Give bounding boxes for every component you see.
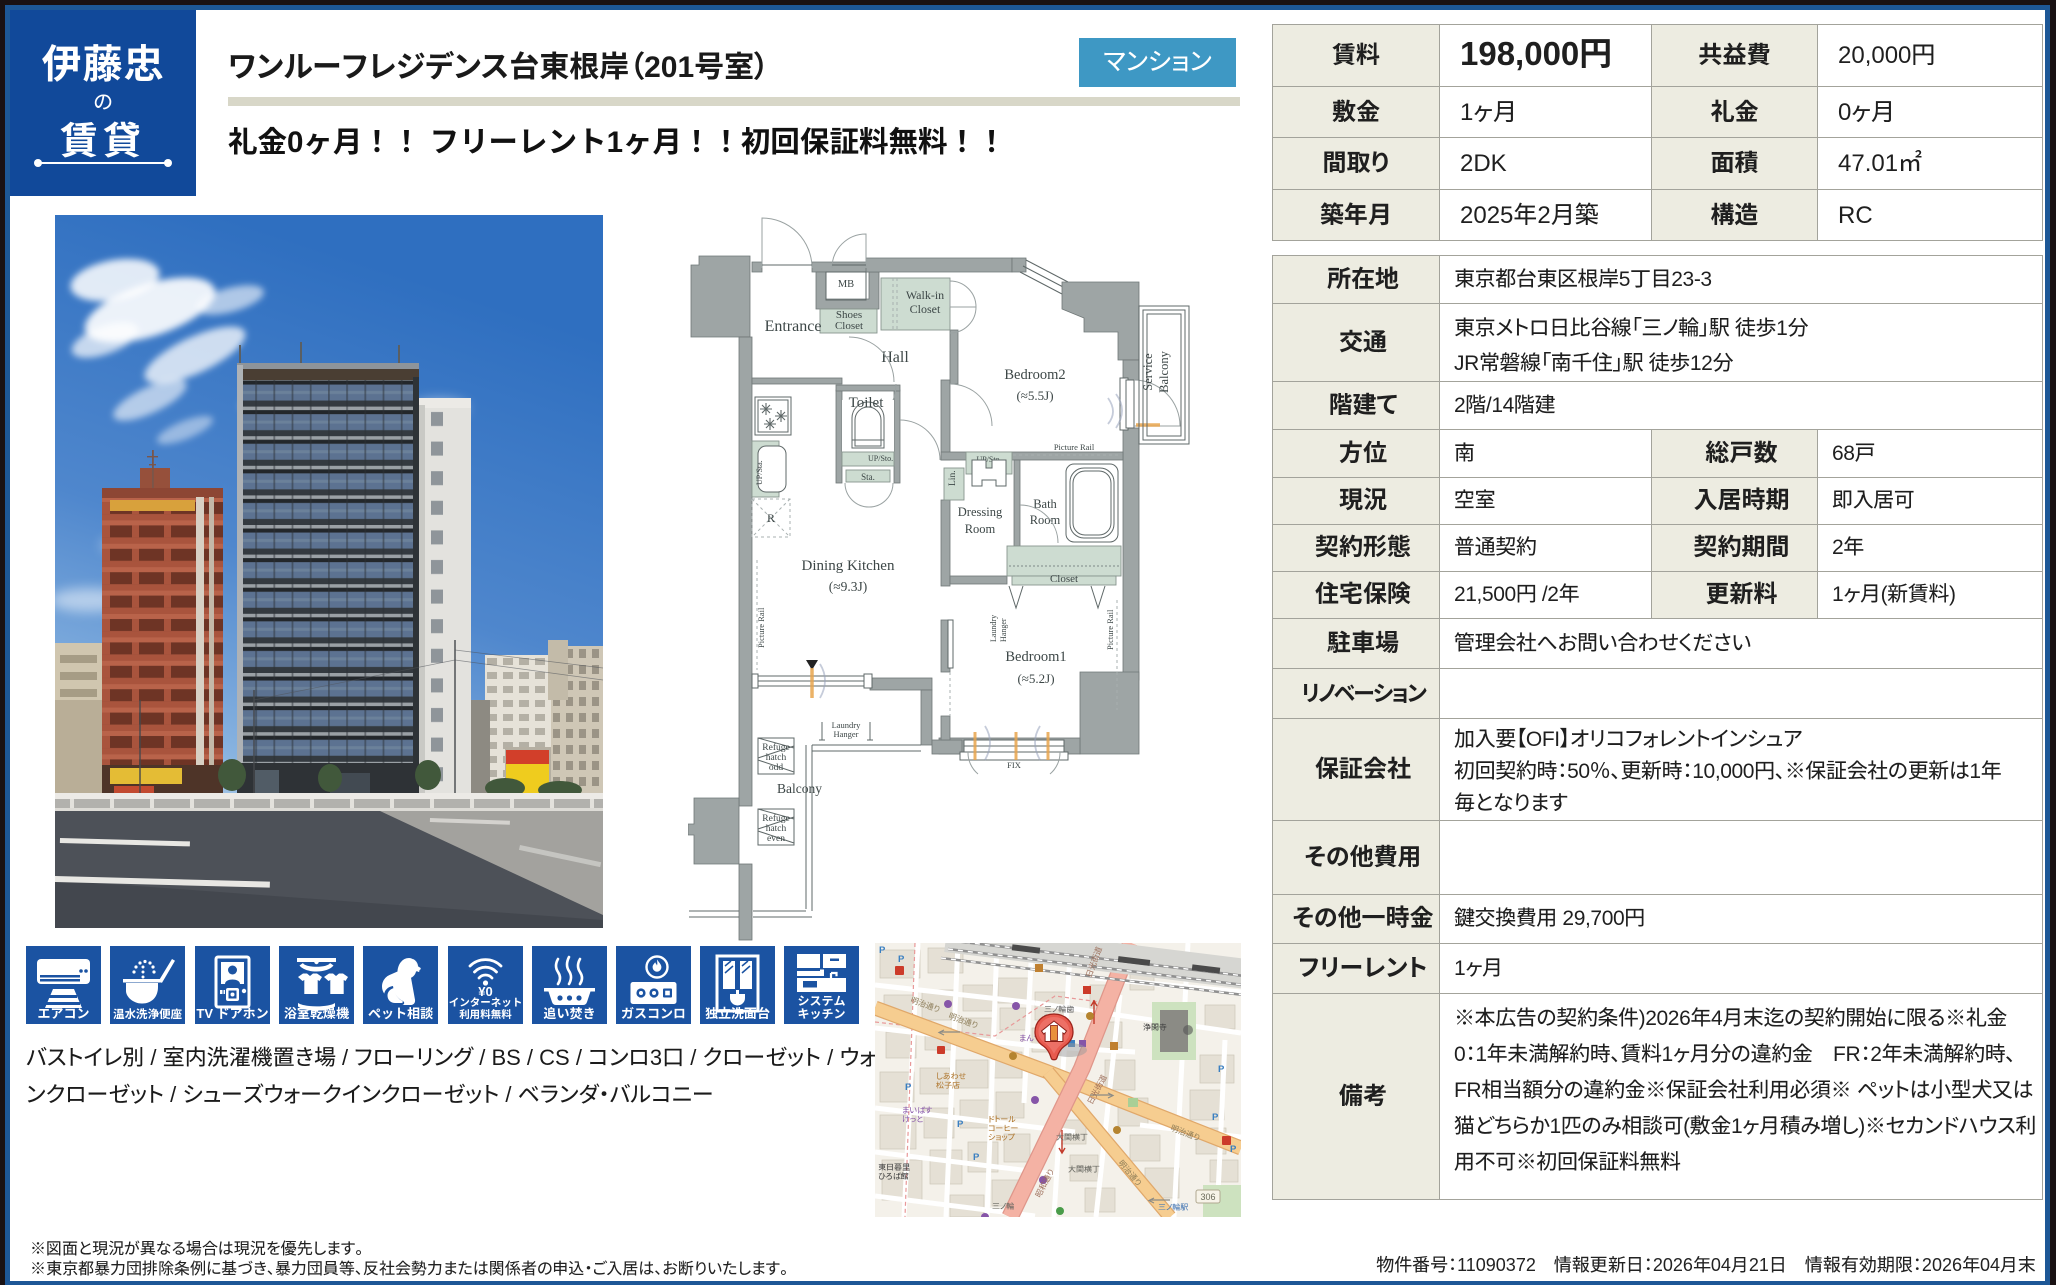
svg-text:Toilet: Toilet — [849, 395, 885, 411]
svg-text:(≈5.2J): (≈5.2J) — [1017, 671, 1054, 686]
svg-text:(≈9.3J): (≈9.3J) — [829, 579, 868, 594]
svg-text:しあわせ: しあわせ — [936, 1072, 967, 1081]
svg-text:Picture Rail: Picture Rail — [1054, 442, 1095, 452]
svg-text:P: P — [1218, 1064, 1225, 1075]
svg-text:Dining Kitchen: Dining Kitchen — [802, 558, 895, 574]
svg-text:Picture Rail: Picture Rail — [1105, 609, 1115, 650]
svg-text:浄閑寺: 浄閑寺 — [1143, 1023, 1167, 1032]
svg-text:P: P — [1230, 1144, 1237, 1155]
svg-text:Closet: Closet — [1050, 573, 1078, 585]
svg-text:ドトール: ドトール — [988, 1115, 1016, 1124]
svg-text:松子店: 松子店 — [935, 1081, 960, 1090]
svg-text:UP/Sto.: UP/Sto. — [868, 454, 893, 463]
svg-text:三ノ輪駅: 三ノ輪駅 — [1158, 1203, 1189, 1212]
svg-text:Balcony: Balcony — [777, 781, 822, 796]
svg-text:MB: MB — [838, 279, 854, 290]
svg-text:Hanger: Hanger — [833, 729, 858, 739]
svg-text:Refuge: Refuge — [762, 813, 789, 824]
svg-text:三ノ輪: 三ノ輪 — [992, 1202, 1014, 1211]
svg-text:FIX: FIX — [1007, 760, 1021, 770]
svg-text:Bedroom2: Bedroom2 — [1004, 367, 1065, 383]
svg-text:Sta.: Sta. — [861, 472, 875, 482]
svg-text:UP/Sta.: UP/Sta. — [755, 460, 764, 485]
svg-text:even: even — [767, 834, 785, 844]
svg-text:ショップ: ショップ — [988, 1133, 1016, 1142]
svg-text:三ノ輪歯: 三ノ輪歯 — [1044, 1005, 1074, 1014]
svg-text:大関横丁: 大関横丁 — [1068, 1165, 1100, 1174]
svg-text:Balcony: Balcony — [1157, 350, 1171, 392]
svg-text:306: 306 — [1200, 1192, 1215, 1202]
svg-text:Closet: Closet — [835, 320, 863, 332]
svg-text:Bedroom1: Bedroom1 — [1005, 649, 1066, 665]
svg-text:P: P — [905, 1082, 912, 1093]
svg-text:Closet: Closet — [910, 302, 941, 316]
svg-text:コーヒー: コーヒー — [988, 1124, 1019, 1133]
svg-text:Dressing: Dressing — [958, 505, 1003, 519]
svg-text:Entrance: Entrance — [765, 318, 822, 335]
svg-text:Hall: Hall — [881, 349, 909, 366]
svg-text:Refuge: Refuge — [762, 742, 789, 753]
svg-text:R: R — [767, 511, 775, 525]
svg-text:東日暮里: 東日暮里 — [877, 1163, 910, 1172]
svg-text:P: P — [957, 1119, 964, 1130]
svg-text:P: P — [973, 1152, 980, 1163]
svg-text:P: P — [898, 954, 905, 965]
svg-text:けっと: けっと — [902, 1115, 923, 1124]
svg-text:Hanger: Hanger — [999, 618, 1008, 642]
svg-text:(≈5.5J): (≈5.5J) — [1016, 388, 1053, 403]
svg-text:odd: odd — [769, 763, 784, 773]
svg-text:P: P — [1212, 1112, 1219, 1123]
svg-text:Room: Room — [965, 522, 996, 536]
svg-text:hatch: hatch — [766, 824, 787, 834]
svg-text:P: P — [879, 945, 886, 956]
svg-text:hatch: hatch — [766, 753, 787, 763]
svg-text:Walk-in: Walk-in — [906, 288, 944, 302]
svg-text:ひろば館: ひろば館 — [878, 1172, 909, 1181]
svg-text:Laundry: Laundry — [989, 615, 998, 642]
svg-text:まいばす: まいばす — [902, 1106, 933, 1115]
svg-text:大関横丁: 大関横丁 — [1056, 1133, 1088, 1142]
svg-text:Service: Service — [1141, 353, 1155, 391]
svg-text:Lin.: Lin. — [948, 470, 958, 486]
